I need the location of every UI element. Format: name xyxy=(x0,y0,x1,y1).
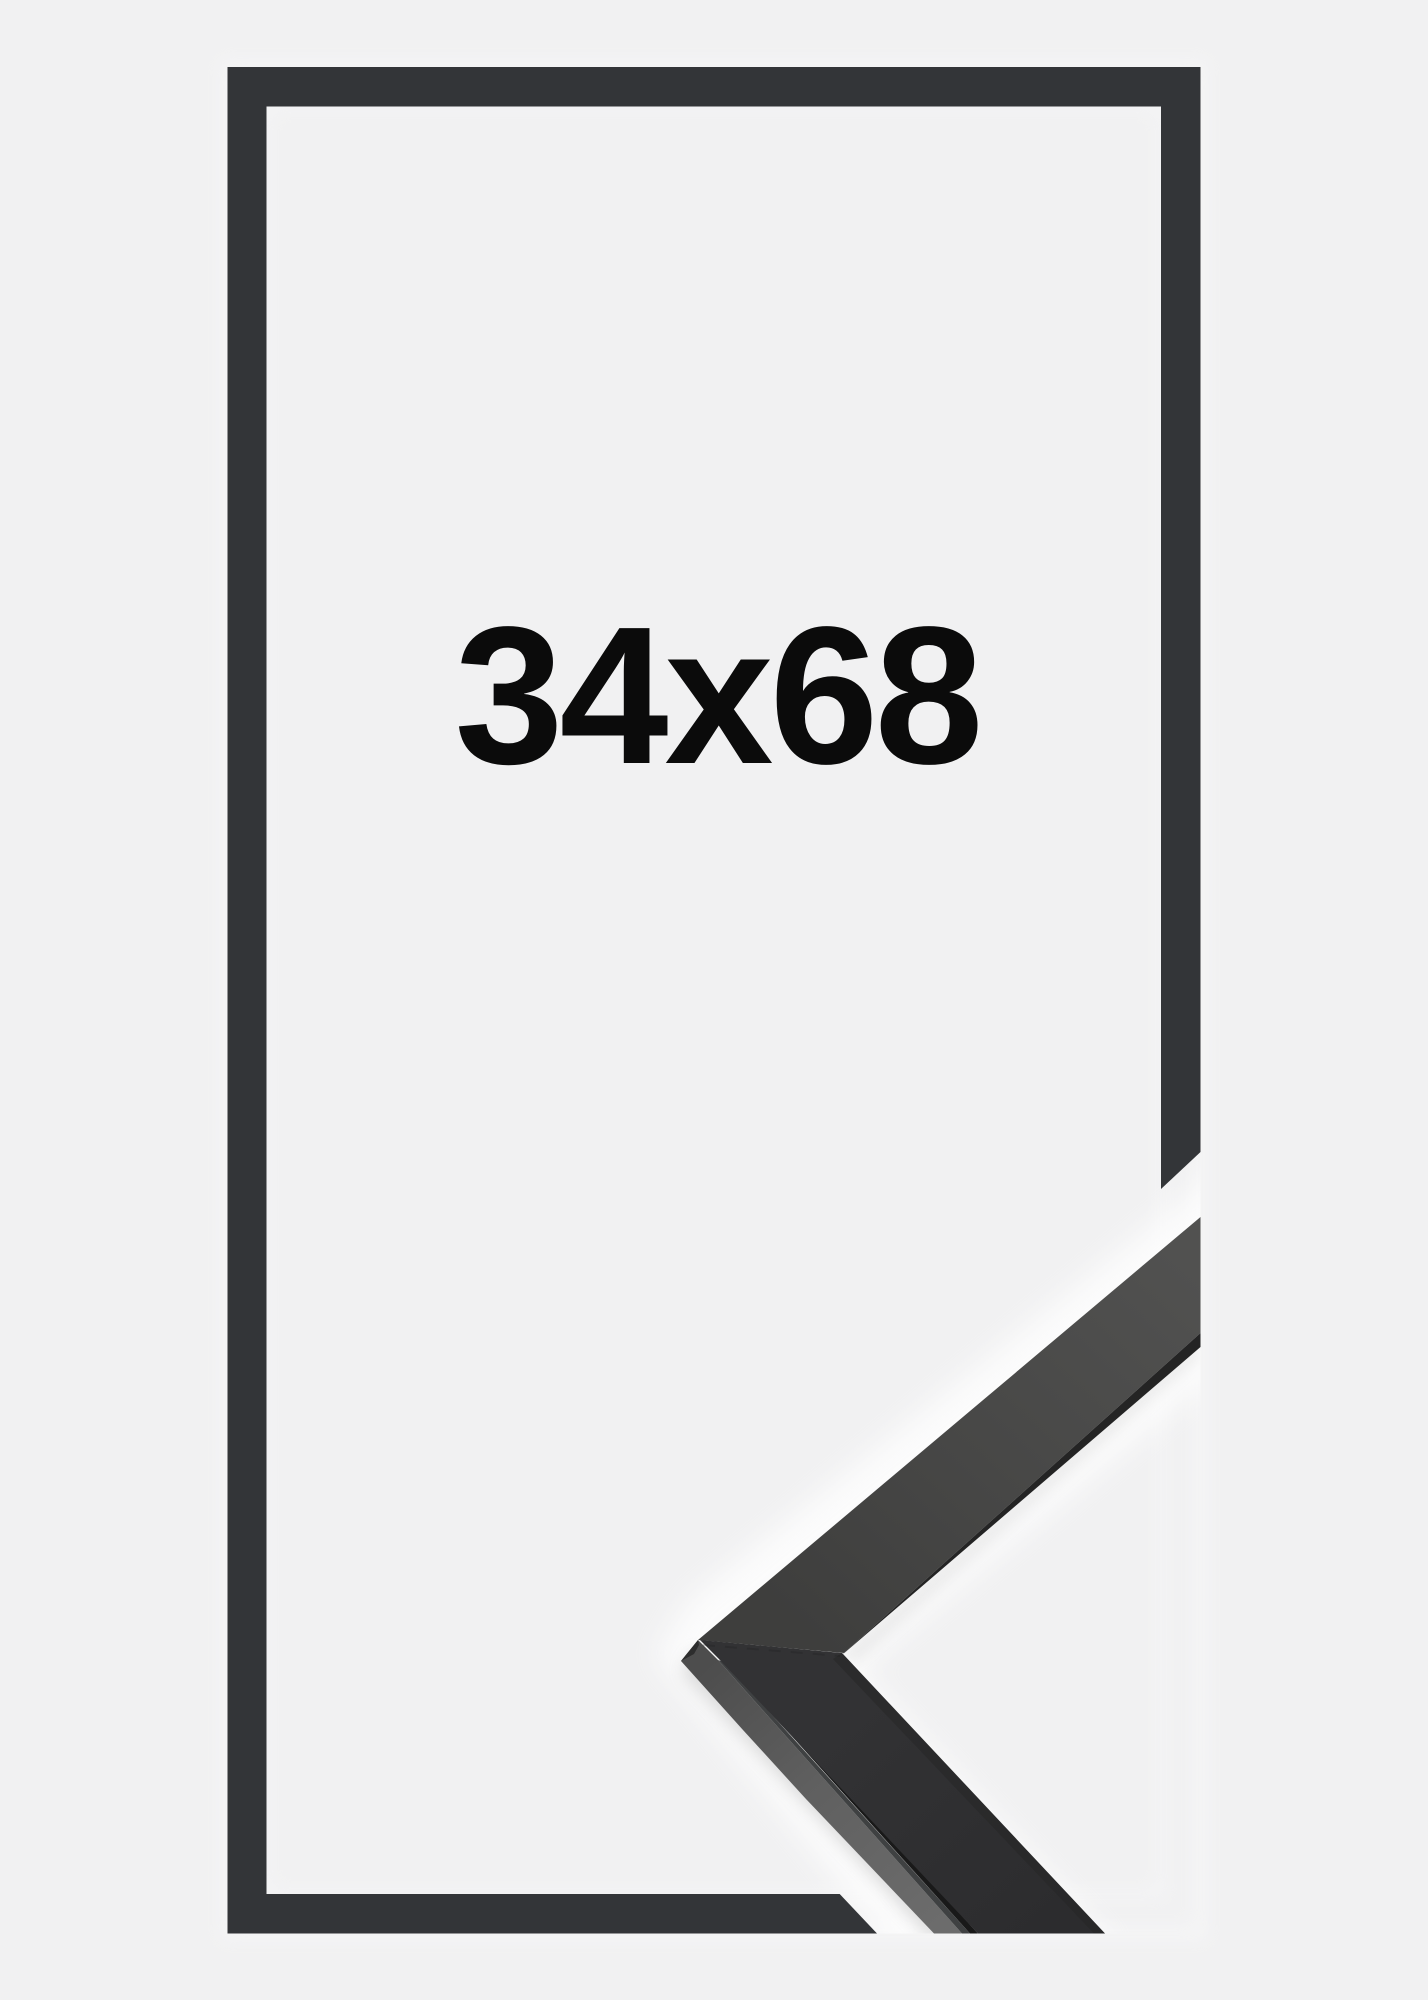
svg-text:34x68: 34x68 xyxy=(454,586,979,805)
